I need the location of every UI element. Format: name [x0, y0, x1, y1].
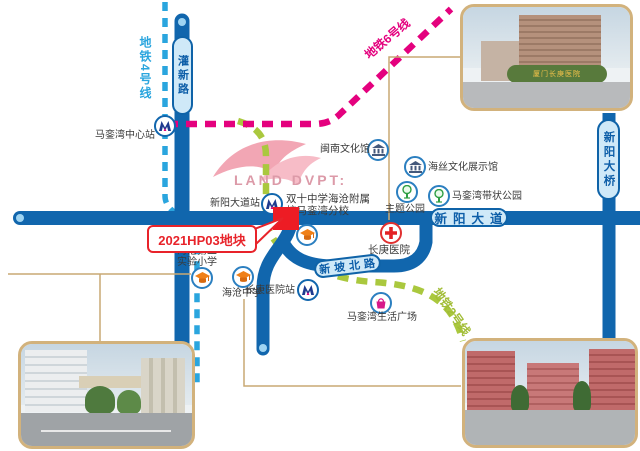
shopping-icon-plaza: [370, 292, 392, 314]
photo-palm-tree: [511, 385, 529, 411]
road-label-xinyang-bridge: 新阳大桥: [597, 119, 620, 200]
photo-second-primary-school: [18, 341, 195, 449]
photo-road: [465, 410, 635, 445]
school-icon-second-primary: [191, 267, 213, 289]
photo-road-marking: [41, 430, 171, 432]
station-label-maluanwan-center: 马銮湾中心站: [95, 130, 155, 141]
landmark-label-shuangshi-line1: 双十中学海沧附属: [286, 194, 370, 205]
photo-road: [463, 82, 630, 108]
road-label-xinyang-avenue: 新阳大道: [430, 208, 508, 227]
parcel-callout-label: 2021HP03地块: [147, 225, 257, 253]
photo-gate-structure: [141, 358, 185, 414]
photo-hospital-sign: 厦门长庚医院: [507, 65, 607, 83]
photo-palm-tree: [573, 381, 591, 411]
landmark-label-haicang-middle: 海沧中学: [222, 288, 262, 299]
metro-line4-label: 地铁4号线: [137, 36, 154, 101]
landmark-label-theme-park: 主题公园: [385, 204, 425, 215]
park-icon-theme-park: [396, 181, 418, 203]
park-icon-ribbon-park: [428, 185, 450, 207]
photo-tree: [117, 390, 141, 414]
museum-icon-minnan: [367, 139, 389, 161]
photo-school-block: [589, 349, 635, 411]
landmark-label-changgung-hospital: 长庚医院: [368, 245, 410, 256]
photo-changgung-hospital: 厦门长庚医院: [460, 4, 633, 111]
landmark-label-second-primary-line2: 实验小学: [176, 257, 218, 268]
landmark-label-minnan: 闽南文化馆: [320, 144, 370, 155]
road-label-guanxin: 灌新路: [172, 36, 193, 115]
photo-school-building: [25, 350, 87, 412]
school-icon-shuangshi: [296, 224, 318, 246]
connector-primary-school-photo: [8, 274, 191, 341]
photo-school-block: [527, 363, 579, 411]
road-terminus-dot: [16, 214, 24, 222]
photo-school-block: [467, 351, 515, 411]
school-icon-haicang-middle: [232, 266, 254, 288]
photo-haicang-middle-school: [462, 338, 638, 448]
road-terminus-dot: [178, 18, 186, 26]
photo-tree: [85, 386, 115, 414]
hospital-icon-changgung: [380, 222, 402, 244]
metro-station-icon-changgung-hospital: [297, 279, 319, 301]
landmark-label-haisi: 海丝文化展示馆: [428, 162, 498, 173]
landmark-label-plaza: 马銮湾生活广场: [346, 312, 418, 323]
landmark-label-ribbon-park: 马銮湾带状公园: [452, 191, 522, 202]
transit-location-map: LAND DVPT: 灌新路 新阳大道 新阳大桥 新坡北路 地铁4号线 地铁6号…: [0, 0, 640, 451]
road-terminus-dot: [259, 344, 267, 352]
metro-station-icon-maluanwan-center: [154, 115, 176, 137]
museum-icon-haisi: [404, 156, 426, 178]
